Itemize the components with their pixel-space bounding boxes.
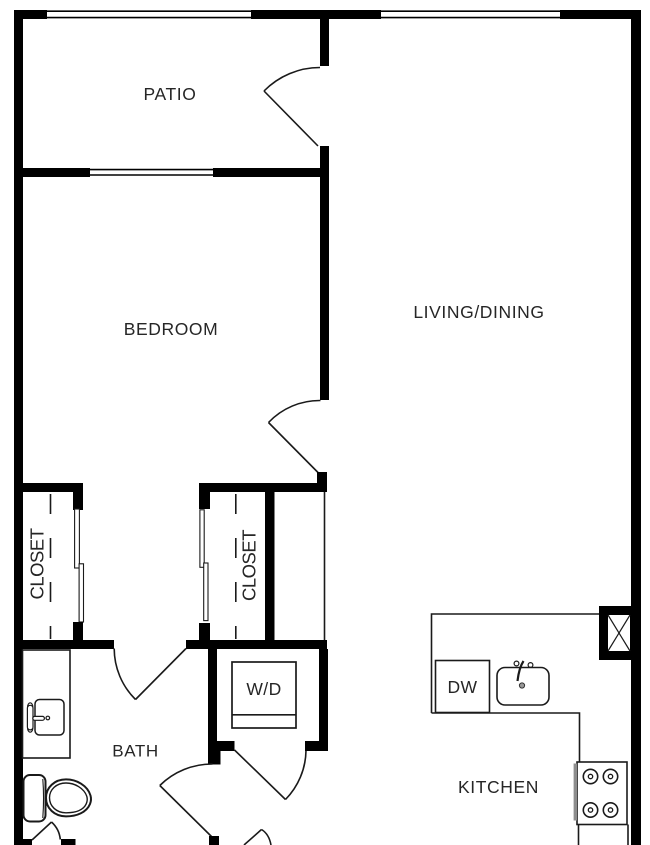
svg-text:DW: DW — [448, 677, 478, 697]
svg-text:CLOSET: CLOSET — [239, 530, 260, 601]
svg-text:W/D: W/D — [246, 679, 281, 699]
svg-text:BATH: BATH — [112, 742, 158, 761]
svg-text:KITCHEN: KITCHEN — [458, 777, 539, 797]
svg-text:PATIO: PATIO — [144, 84, 197, 104]
svg-text:CLOSET: CLOSET — [27, 528, 48, 599]
svg-text:BEDROOM: BEDROOM — [124, 319, 219, 339]
svg-text:LIVING/DINING: LIVING/DINING — [413, 302, 544, 322]
